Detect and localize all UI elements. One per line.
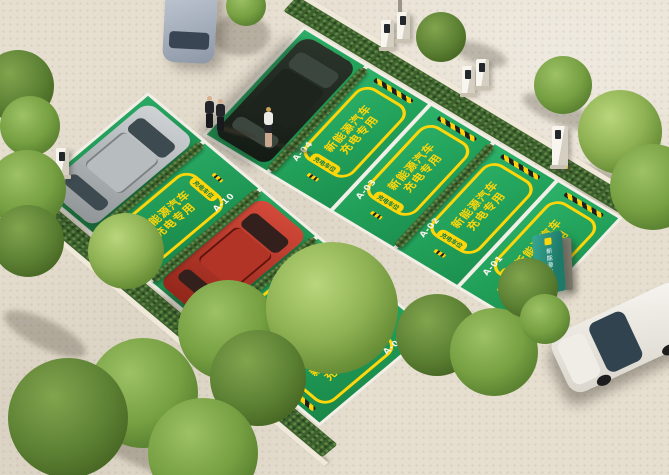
ground-lock	[370, 211, 383, 220]
tree	[0, 205, 64, 277]
white-sedan-car	[547, 275, 669, 396]
person-torso	[264, 112, 273, 125]
ground-lock	[433, 249, 446, 258]
ground-lock	[211, 173, 223, 183]
charging-pile	[381, 20, 394, 48]
van-rear-window	[169, 31, 209, 50]
tree-shadow	[0, 302, 92, 367]
bush	[416, 12, 466, 62]
person-woman	[263, 107, 273, 147]
person-legs	[217, 117, 224, 131]
charging-pile	[552, 126, 568, 169]
ground-lock	[306, 173, 319, 182]
charging-pile	[462, 66, 475, 94]
person-man	[204, 96, 214, 128]
charging-pile	[397, 12, 410, 40]
marking-tab: 充电车位	[371, 190, 406, 215]
marking-tab: 充电车位	[307, 152, 342, 177]
gray-minivan-car	[162, 0, 218, 64]
person-torso	[205, 101, 214, 114]
person-legs	[206, 114, 213, 128]
tree	[534, 56, 592, 114]
tree	[0, 96, 60, 156]
sign-logo-icon	[544, 237, 551, 245]
person-man	[215, 99, 225, 131]
car-wheel	[660, 342, 669, 357]
person-skirt	[264, 125, 272, 133]
person-torso	[216, 104, 225, 117]
parking-lot-render: 新能源汽车充电专用充电车位A-05新能源汽车充电专用充电车位A-04新能源汽车充…	[0, 0, 669, 475]
marking-tab: 充电车位	[434, 228, 469, 253]
charging-pile	[476, 59, 489, 87]
tree	[8, 358, 128, 475]
tree	[88, 213, 164, 289]
person-legs	[265, 133, 272, 147]
bush	[520, 294, 570, 344]
